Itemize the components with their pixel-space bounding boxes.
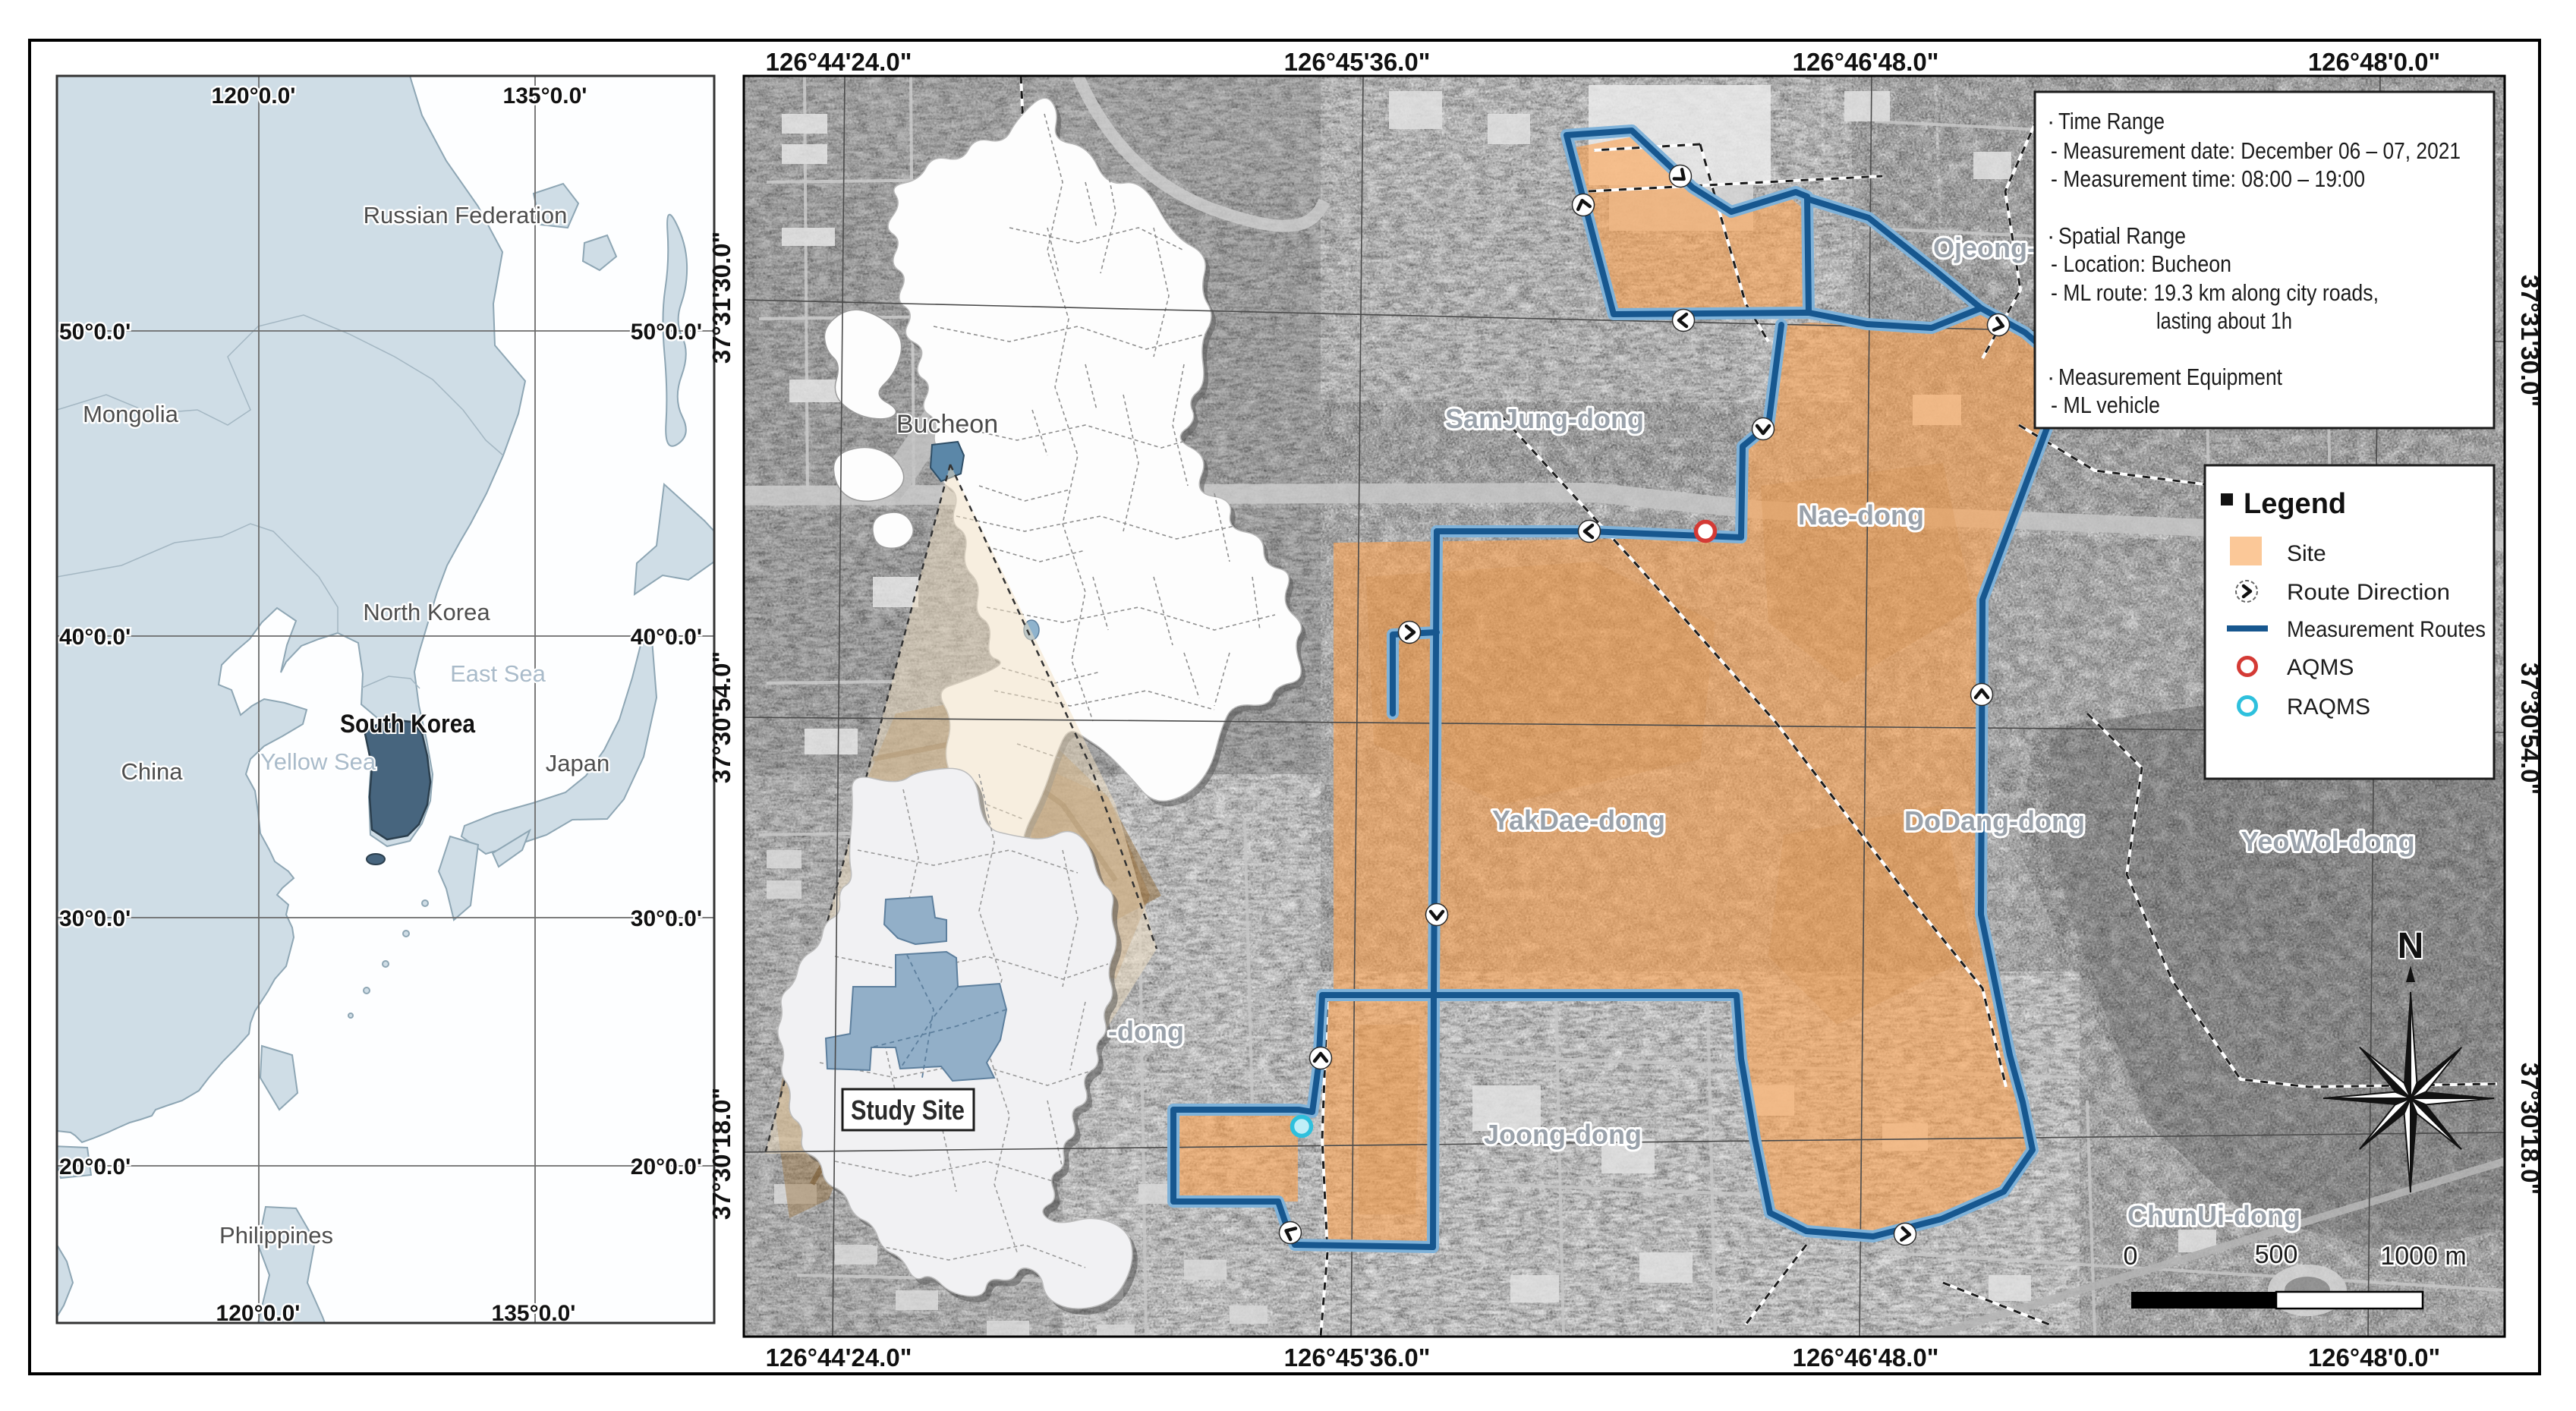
svg-text:Spatial Range: Spatial Range bbox=[2058, 222, 2186, 249]
svg-text:1000 m: 1000 m bbox=[2380, 1242, 2466, 1271]
svg-text:DoDang-dong: DoDang-dong bbox=[1904, 805, 2085, 836]
svg-text:135°0.0': 135°0.0' bbox=[503, 83, 587, 109]
svg-text:30°0.0': 30°0.0' bbox=[59, 906, 131, 931]
svg-text:126°48'0.0": 126°48'0.0" bbox=[2308, 48, 2440, 76]
svg-text:40°0.0': 40°0.0' bbox=[631, 625, 702, 650]
svg-text:126°44'24.0": 126°44'24.0" bbox=[766, 48, 912, 76]
svg-text:126°46'48.0": 126°46'48.0" bbox=[1793, 1343, 1939, 1372]
svg-text:YakDae-dong: YakDae-dong bbox=[1492, 805, 1665, 836]
svg-text:- ML vehicle: - ML vehicle bbox=[2051, 392, 2160, 418]
svg-text:Time Range: Time Range bbox=[2058, 108, 2165, 134]
svg-text:Yellow Sea: Yellow Sea bbox=[260, 748, 376, 775]
svg-text:0: 0 bbox=[2124, 1242, 2138, 1271]
svg-text:RAQMS: RAQMS bbox=[2287, 694, 2370, 720]
svg-text:YeoWol-dong: YeoWol-dong bbox=[2241, 826, 2414, 857]
svg-text:North Korea: North Korea bbox=[363, 599, 490, 625]
svg-text:SamJung-dong: SamJung-dong bbox=[1445, 403, 1644, 434]
svg-text:lasting about 1h: lasting about 1h bbox=[2156, 307, 2292, 334]
svg-text:37°30'54.0": 37°30'54.0" bbox=[707, 651, 735, 783]
svg-text:126°48'0.0": 126°48'0.0" bbox=[2308, 1343, 2440, 1372]
svg-text:120°0.0': 120°0.0' bbox=[212, 83, 296, 109]
svg-text:ChunUi-dong: ChunUi-dong bbox=[2127, 1200, 2300, 1231]
svg-text:- Location: Bucheon: - Location: Bucheon bbox=[2051, 250, 2231, 277]
svg-text:- ML route: 19.3 km along city: - ML route: 19.3 km along city roads, bbox=[2051, 279, 2379, 306]
svg-text:40°0.0': 40°0.0' bbox=[59, 625, 131, 650]
svg-text:Joong-dong: Joong-dong bbox=[1484, 1119, 1642, 1150]
svg-text:126°45'36.0": 126°45'36.0" bbox=[1284, 1343, 1431, 1372]
svg-text:·: · bbox=[2047, 108, 2055, 134]
svg-text:Mongolia: Mongolia bbox=[83, 401, 179, 427]
svg-text:Japan: Japan bbox=[546, 750, 609, 776]
svg-text:20°0.0': 20°0.0' bbox=[631, 1154, 702, 1180]
svg-text:37°31'30.0": 37°31'30.0" bbox=[2516, 275, 2544, 407]
svg-text:·: · bbox=[2047, 222, 2055, 249]
svg-text:Legend: Legend bbox=[2244, 488, 2346, 520]
svg-text:Russian Federation: Russian Federation bbox=[364, 202, 568, 228]
svg-text:N: N bbox=[2398, 926, 2424, 966]
svg-text:37°30'18.0": 37°30'18.0" bbox=[2516, 1063, 2544, 1195]
svg-text:126°44'24.0": 126°44'24.0" bbox=[766, 1343, 912, 1372]
svg-text:AQMS: AQMS bbox=[2287, 655, 2354, 680]
svg-text:East Sea: East Sea bbox=[450, 660, 546, 687]
svg-text:Route Direction: Route Direction bbox=[2287, 580, 2450, 605]
svg-text:Study Site: Study Site bbox=[851, 1094, 965, 1126]
svg-text:500: 500 bbox=[2255, 1240, 2298, 1269]
svg-text:126°45'36.0": 126°45'36.0" bbox=[1284, 48, 1431, 76]
svg-text:37°30'18.0": 37°30'18.0" bbox=[707, 1088, 735, 1220]
svg-text:20°0.0': 20°0.0' bbox=[59, 1154, 131, 1180]
svg-text:- Measurement date: December 0: - Measurement date: December 06 – 07, 20… bbox=[2051, 137, 2461, 164]
svg-text:30°0.0': 30°0.0' bbox=[631, 906, 702, 931]
svg-text:·: · bbox=[2047, 364, 2055, 390]
svg-text:China: China bbox=[121, 758, 184, 785]
svg-text:Bucheon: Bucheon bbox=[896, 410, 998, 439]
svg-text:- Measurement time: 08:00 – 19: - Measurement time: 08:00 – 19:00 bbox=[2051, 165, 2365, 192]
svg-text:South Korea: South Korea bbox=[340, 710, 476, 739]
svg-text:126°46'48.0": 126°46'48.0" bbox=[1793, 48, 1939, 76]
svg-text:-dong: -dong bbox=[1108, 1016, 1184, 1047]
svg-text:37°31'30.0": 37°31'30.0" bbox=[707, 231, 735, 364]
svg-text:Philippines: Philippines bbox=[219, 1222, 333, 1249]
svg-text:Nae-dong: Nae-dong bbox=[1798, 499, 1924, 531]
svg-text:Site: Site bbox=[2287, 541, 2326, 566]
svg-text:50°0.0': 50°0.0' bbox=[59, 320, 131, 345]
svg-text:50°0.0': 50°0.0' bbox=[631, 320, 702, 345]
svg-text:37°30'54.0": 37°30'54.0" bbox=[2516, 663, 2544, 795]
svg-text:Measurement Equipment: Measurement Equipment bbox=[2058, 364, 2282, 390]
svg-text:Measurement Routes: Measurement Routes bbox=[2287, 617, 2486, 642]
